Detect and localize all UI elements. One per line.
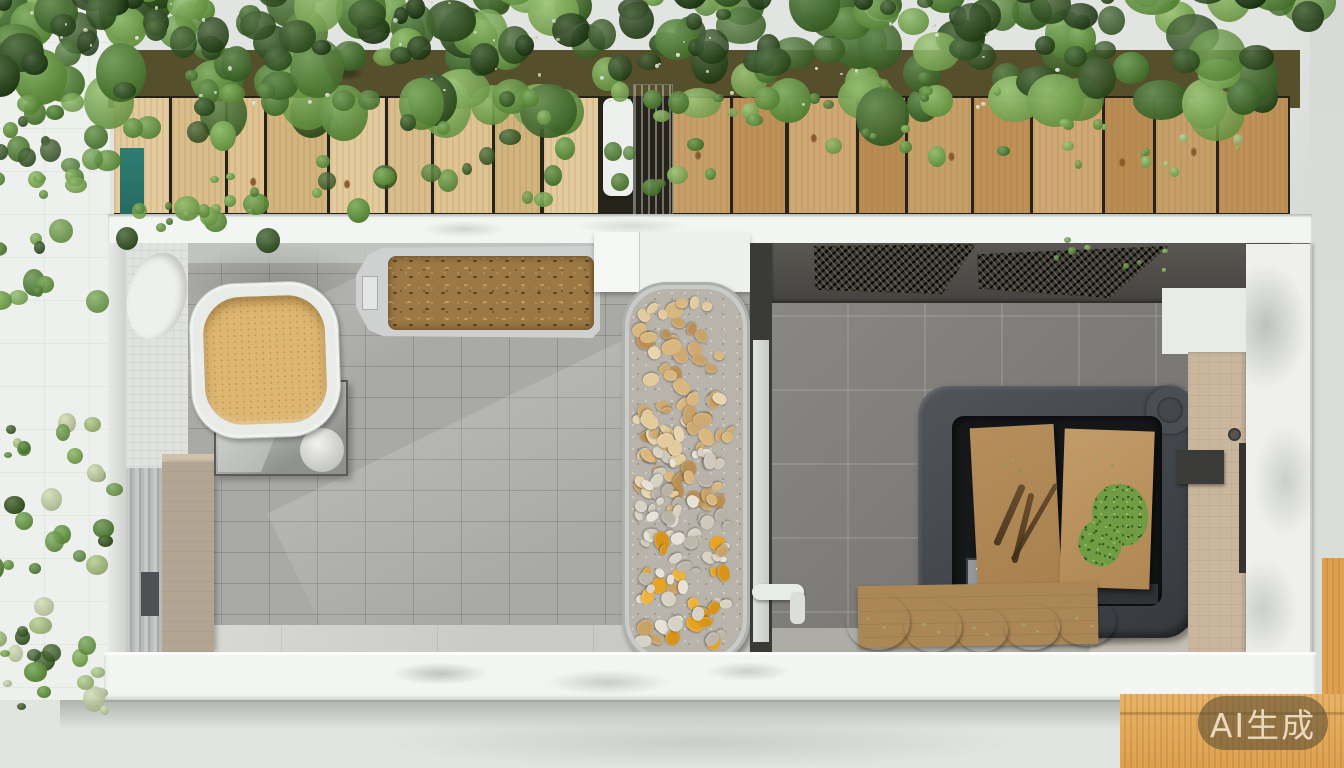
foliage-blob: [1075, 15, 1090, 29]
foliage-blob: [552, 19, 556, 23]
garlic-bulb: [956, 608, 1008, 652]
foliage-blob: [495, 0, 535, 5]
foliage-blob: [391, 2, 436, 51]
pebble: [645, 510, 661, 524]
pebble: [712, 349, 725, 361]
foliage-blob: [294, 0, 343, 32]
foliage-blob: [240, 11, 276, 41]
foliage-blob: [131, 0, 165, 2]
beige-cabinet: [162, 462, 214, 652]
wood-plank: [859, 98, 905, 213]
foliage-blob: [284, 10, 328, 56]
wood-plank: [1219, 98, 1288, 213]
garlic-bulb: [904, 602, 962, 652]
foliage-blob: [236, 10, 259, 36]
foliage-blob: [889, 22, 892, 25]
door-knob: [1228, 428, 1241, 441]
foliage-blob: [619, 2, 653, 39]
foliage-blob: [716, 7, 766, 44]
foliage-blob: [723, 0, 764, 25]
wood-plank: [733, 98, 786, 213]
pebble: [691, 568, 700, 574]
pellet-tray-notch: [362, 276, 378, 310]
foliage-blob: [353, 0, 388, 23]
foliage-blob: [136, 0, 180, 9]
foliage-blob: [159, 15, 197, 50]
foliage-blob: [854, 0, 873, 10]
foliage-blob: [135, 36, 139, 40]
foliage-blob: [742, 0, 768, 4]
foliage-blob: [394, 7, 409, 24]
foliage-blob: [1100, 0, 1115, 4]
wood-plank: [789, 98, 856, 213]
foliage-blob: [357, 16, 390, 45]
foliage-blob: [986, 0, 1019, 31]
foliage-blob: [986, 33, 990, 36]
foliage-blob: [399, 43, 402, 47]
foliage-blob: [143, 9, 169, 36]
foliage-blob: [175, 2, 204, 33]
foliage-blob: [969, 0, 1001, 32]
foliage-blob: [693, 0, 720, 16]
foliage-blob: [935, 33, 939, 37]
foliage-blob: [255, 0, 292, 3]
foliage-blob: [302, 0, 327, 3]
foliage-blob: [258, 0, 289, 7]
pebble: [670, 316, 686, 330]
glass-panel: [633, 84, 673, 215]
wood-plank: [434, 98, 491, 213]
pebble: [678, 580, 688, 594]
white-pipe-elbow-down: [790, 592, 805, 624]
foliage-blob: [105, 7, 147, 48]
wood-plank: [544, 98, 599, 213]
white-shelf-box-left: [594, 232, 640, 292]
foliage-blob: [880, 0, 896, 15]
door-latch: [1176, 450, 1224, 484]
pebble: [639, 330, 658, 344]
foliage-blob: [709, 37, 711, 39]
foliage-blob: [831, 0, 872, 16]
garlic-bulb: [1056, 596, 1116, 646]
wood-plank: [267, 98, 326, 213]
foliage-blob: [866, 0, 902, 20]
wood-plank: [330, 98, 386, 213]
foliage-blob: [489, 0, 510, 15]
leaf-shadow: [300, 656, 860, 700]
right-wall-white-band: [1162, 288, 1248, 354]
foliage-blob: [197, 17, 229, 53]
foliage-blob: [588, 19, 616, 50]
ai-generated-watermark: AI生成: [1198, 696, 1328, 750]
foliage-blob: [618, 0, 649, 20]
foliage-blob: [393, 18, 398, 23]
foliage-blob: [124, 0, 176, 25]
foliage-blob: [336, 0, 387, 39]
foliage-blob: [1130, 0, 1163, 7]
foliage-blob: [826, 7, 870, 40]
foliage-blob: [239, 5, 261, 25]
wood-plank: [672, 98, 730, 213]
garlic-bulb: [846, 594, 910, 650]
foliage-blob: [430, 1, 433, 3]
watermark-text: AI生成: [1210, 699, 1316, 747]
wood-plank: [908, 98, 971, 213]
foliage-blob: [1206, 0, 1252, 22]
wood-plank: [1156, 98, 1216, 213]
foliage-blob: [789, 0, 840, 32]
foliage-blob: [1188, 0, 1227, 4]
pebble: [716, 563, 731, 582]
foliage-blob: [474, 31, 477, 34]
pebble: [705, 363, 718, 374]
pebble: [688, 296, 699, 310]
foliage-blob: [556, 38, 560, 41]
wood-plank: [228, 98, 264, 213]
foliage-blob: [686, 13, 703, 30]
foliage-blob: [1063, 3, 1098, 29]
foliage-blob: [155, 6, 159, 10]
pebble: [704, 453, 716, 469]
foliage-blob: [925, 0, 965, 13]
foliage-blob: [426, 0, 477, 42]
basin: [187, 279, 342, 440]
foliage-blob: [346, 39, 348, 41]
foliage-blob: [145, 18, 167, 41]
foliage-blob: [394, 13, 426, 50]
white-plant-tuft: [992, 450, 1034, 488]
foliage-blob: [167, 0, 209, 20]
foliage-blob: [533, 36, 538, 39]
foliage-blob: [365, 0, 407, 33]
blind-dark-slot: [141, 572, 159, 616]
wood-plank: [172, 98, 226, 213]
exterior-wall-left: [0, 0, 110, 768]
white-pipe: [603, 98, 633, 196]
door-slot: [1239, 443, 1246, 573]
foliage-blob: [807, 0, 856, 38]
foliage-blob: [917, 0, 933, 8]
foliage-blob: [1124, 0, 1181, 15]
foliage-blob: [528, 0, 579, 36]
foliage-blob: [279, 20, 315, 54]
foliage-blob: [716, 0, 743, 3]
foliage-blob: [193, 0, 215, 22]
foliage-blob: [348, 0, 386, 30]
foliage-blob: [953, 3, 991, 42]
foliage-blob: [118, 0, 173, 23]
foliage-blob: [898, 8, 929, 35]
wood-plank: [974, 98, 1030, 213]
wood-plank: [1105, 98, 1153, 213]
foliage-blob: [712, 0, 745, 7]
pebble-bed: [629, 289, 743, 657]
foliage-blob: [562, 45, 564, 47]
foliage-blob: [122, 0, 145, 9]
striped-blind-panel: [126, 468, 164, 656]
foliage-blob: [554, 0, 592, 25]
pebble: [662, 406, 673, 413]
foliage-blob: [577, 24, 591, 41]
foliage-blob: [1030, 0, 1071, 24]
left-wall-edge: [108, 243, 126, 661]
foliage-blob: [853, 0, 899, 29]
white-plant-tuft: [1082, 446, 1128, 482]
basin-honeycomb-liquid: [202, 294, 328, 426]
wood-plank-row: [114, 96, 1290, 215]
pebble: [684, 536, 698, 549]
foliage-blob: [406, 0, 426, 19]
foliage-blob: [747, 0, 772, 10]
crumpled-paper: [300, 428, 344, 472]
foliage-blob: [508, 0, 546, 13]
foliage-blob: [266, 0, 316, 28]
pebble: [711, 481, 723, 492]
foliage-blob: [643, 0, 664, 6]
wood-plank: [388, 98, 431, 213]
foliage-blob: [675, 16, 707, 52]
foliage-blob: [202, 18, 205, 22]
pebble: [702, 301, 712, 310]
foliage-blob: [942, 16, 945, 18]
foliage-blob: [472, 0, 513, 14]
pebble: [720, 599, 733, 609]
brown-pellets: [388, 256, 594, 330]
foliage-blob: [552, 13, 590, 47]
ground-shadow: [380, 716, 1020, 768]
ai-generated-room-photo: AI生成: [0, 0, 1344, 768]
foliage-blob: [949, 6, 967, 27]
foliage-blob: [1233, 0, 1269, 9]
foliage-blob: [170, 3, 172, 5]
foliage-blob: [448, 2, 451, 5]
foliage-blob: [683, 41, 686, 43]
foliage-blob: [493, 39, 495, 41]
foliage-blob: [704, 0, 743, 12]
marble-column: [1246, 244, 1312, 700]
pebble: [675, 298, 687, 309]
foliage-blob: [932, 24, 936, 27]
wood-plank: [495, 98, 541, 213]
pebble: [667, 574, 674, 584]
foliage-blob: [1098, 6, 1125, 35]
foliage-blob: [1155, 1, 1196, 35]
garlic-bulb: [1004, 604, 1060, 650]
foliage-blob: [716, 9, 731, 19]
wood-plank: [1033, 98, 1102, 213]
foliage-blob: [672, 0, 708, 9]
foliage-blob: [1012, 0, 1039, 3]
pebble: [642, 371, 660, 387]
foliage-blob: [1012, 0, 1052, 30]
